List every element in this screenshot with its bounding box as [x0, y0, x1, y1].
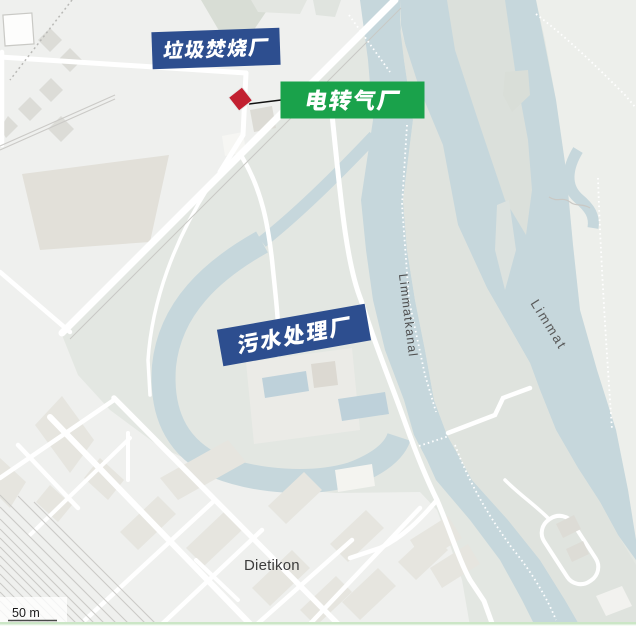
svg-text:50 m: 50 m: [12, 606, 40, 620]
svg-text:Dietikon: Dietikon: [244, 557, 300, 574]
